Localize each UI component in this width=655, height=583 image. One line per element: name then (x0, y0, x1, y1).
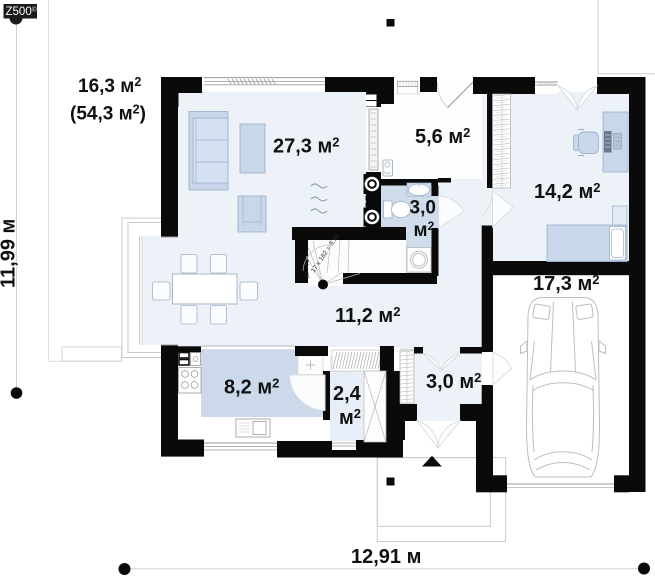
svg-text:14,2 м2: 14,2 м2 (534, 180, 601, 203)
svg-text:2: 2 (306, 260, 310, 267)
svg-text:11,99 м: 11,99 м (0, 219, 20, 288)
svg-text:11,2 м2: 11,2 м2 (335, 304, 400, 327)
svg-text:3,0: 3,0 (410, 198, 436, 219)
svg-text:3,0 м2: 3,0 м2 (426, 370, 481, 393)
svg-text:12,91 м: 12,91 м (351, 546, 421, 568)
svg-text:5,6 м2: 5,6 м2 (415, 125, 470, 148)
svg-text:27,3 м2: 27,3 м2 (273, 135, 340, 158)
svg-text:8,2 м2: 8,2 м2 (224, 376, 279, 399)
svg-text:17,3 м2: 17,3 м2 (533, 272, 600, 295)
svg-text:1: 1 (306, 273, 310, 280)
svg-text:2,4: 2,4 (333, 383, 362, 405)
svg-text:16,3 м2: 16,3 м2 (78, 75, 141, 97)
